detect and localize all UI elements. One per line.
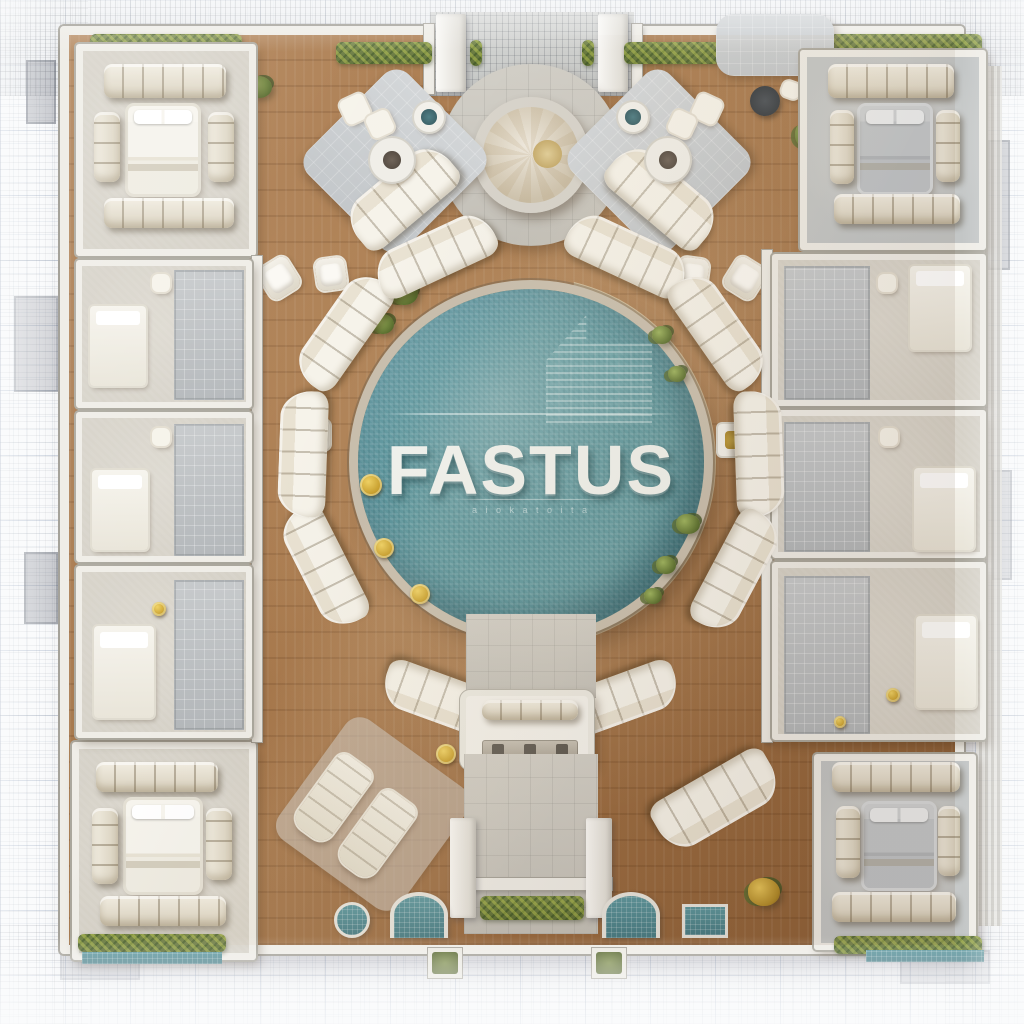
sofa-cushion-row (830, 110, 854, 184)
sofa-cushion-row (208, 112, 234, 182)
service-room-left-3 (76, 566, 252, 738)
sketch-fade-overlay-left (0, 0, 64, 1024)
fixture (878, 274, 896, 292)
shrub (656, 556, 676, 574)
stone-walkway-bottom (466, 614, 596, 698)
bistro-table (750, 86, 780, 116)
bedroom-suite-bottom-right (814, 754, 976, 950)
gold-tray (374, 538, 394, 558)
bathroom-tile-floor (784, 266, 870, 400)
gold-tray (436, 744, 456, 764)
sofa-cushion-row (938, 806, 960, 876)
single-bed (92, 470, 148, 550)
water-light-line (386, 413, 676, 415)
service-room-left-2 (76, 412, 252, 562)
service-room-left-1 (76, 260, 252, 408)
shrub (652, 326, 672, 344)
mosaic-basin (682, 904, 728, 938)
sofa-cushion-row (836, 806, 860, 878)
ring-side-table (646, 138, 690, 182)
pool-tagline-rule (453, 499, 609, 500)
bed (860, 106, 930, 192)
shrub (644, 588, 662, 604)
curved-sofa (277, 390, 329, 518)
bed (128, 106, 198, 194)
single-bed (94, 626, 154, 718)
bathroom-tile-floor (174, 580, 244, 730)
bed (126, 800, 200, 892)
hedge-planter (480, 896, 584, 920)
fixture (152, 274, 170, 292)
entrance-pillar (450, 818, 476, 918)
single-bed (90, 306, 146, 386)
gold-tray (360, 474, 382, 496)
floorplan-render: FASTUS a i o k a t o i t a (0, 0, 1024, 1024)
bathroom-tile-floor (174, 424, 244, 556)
bedroom-suite-top-left (76, 44, 256, 256)
service-room-right-1 (772, 254, 986, 406)
ring-side-table (370, 138, 414, 182)
service-room-right-2 (772, 410, 986, 558)
shrub (676, 514, 700, 534)
sofa-cushion-row (96, 762, 218, 792)
round-planter (414, 102, 444, 132)
sofa-cushion-row (828, 64, 954, 98)
round-mosaic-basin (334, 902, 370, 938)
sofa-cushion-row (832, 762, 960, 792)
arched-mosaic-window (390, 892, 448, 938)
sofa-cushion-row (92, 808, 118, 884)
bedroom-suite-top-right (800, 50, 986, 250)
bathroom-tile-floor (174, 270, 244, 400)
gold-tray (410, 584, 430, 604)
bedroom-suite-bottom-left (72, 742, 256, 960)
sofa-cushion-row (834, 194, 960, 224)
gold-tray (834, 716, 846, 728)
armchair (314, 256, 348, 292)
mosaic-pool: FASTUS a i o k a t o i t a (358, 289, 704, 635)
gold-tray (152, 602, 166, 616)
sofa-cushion-row (482, 700, 578, 720)
sofa-cushion-row (104, 198, 234, 228)
service-room-right-3 (772, 562, 986, 740)
sketch-fade-overlay-bottom (0, 936, 1024, 1024)
bathroom-tile-floor (784, 576, 870, 734)
sofa-cushion-row (206, 808, 232, 880)
gold-tray (886, 688, 900, 702)
round-planter (618, 102, 648, 132)
sofa-cushion-row (104, 64, 226, 98)
single-bed (910, 266, 970, 350)
fixture (880, 428, 898, 446)
shrub (668, 366, 686, 382)
glass-building-reflection (546, 315, 652, 423)
sofa-cushion-row (936, 110, 960, 182)
corridor-wall (252, 256, 262, 742)
bed (864, 804, 934, 888)
sofa-cushion-row (832, 892, 956, 922)
curved-sofa (733, 390, 785, 518)
golden-shrub (748, 878, 780, 906)
arched-mosaic-window (602, 892, 660, 938)
sketch-fade-overlay-top (0, 0, 1024, 52)
sofa-cushion-row (100, 896, 226, 926)
sketch-fade-overlay-right (962, 0, 1024, 1024)
pool-logo-text: FASTUS (358, 435, 704, 505)
sofa-cushion-row (94, 112, 120, 182)
fixture (152, 428, 170, 446)
bathroom-tile-floor (784, 422, 870, 552)
pool-tagline-text: a i o k a t o i t a (358, 505, 704, 515)
